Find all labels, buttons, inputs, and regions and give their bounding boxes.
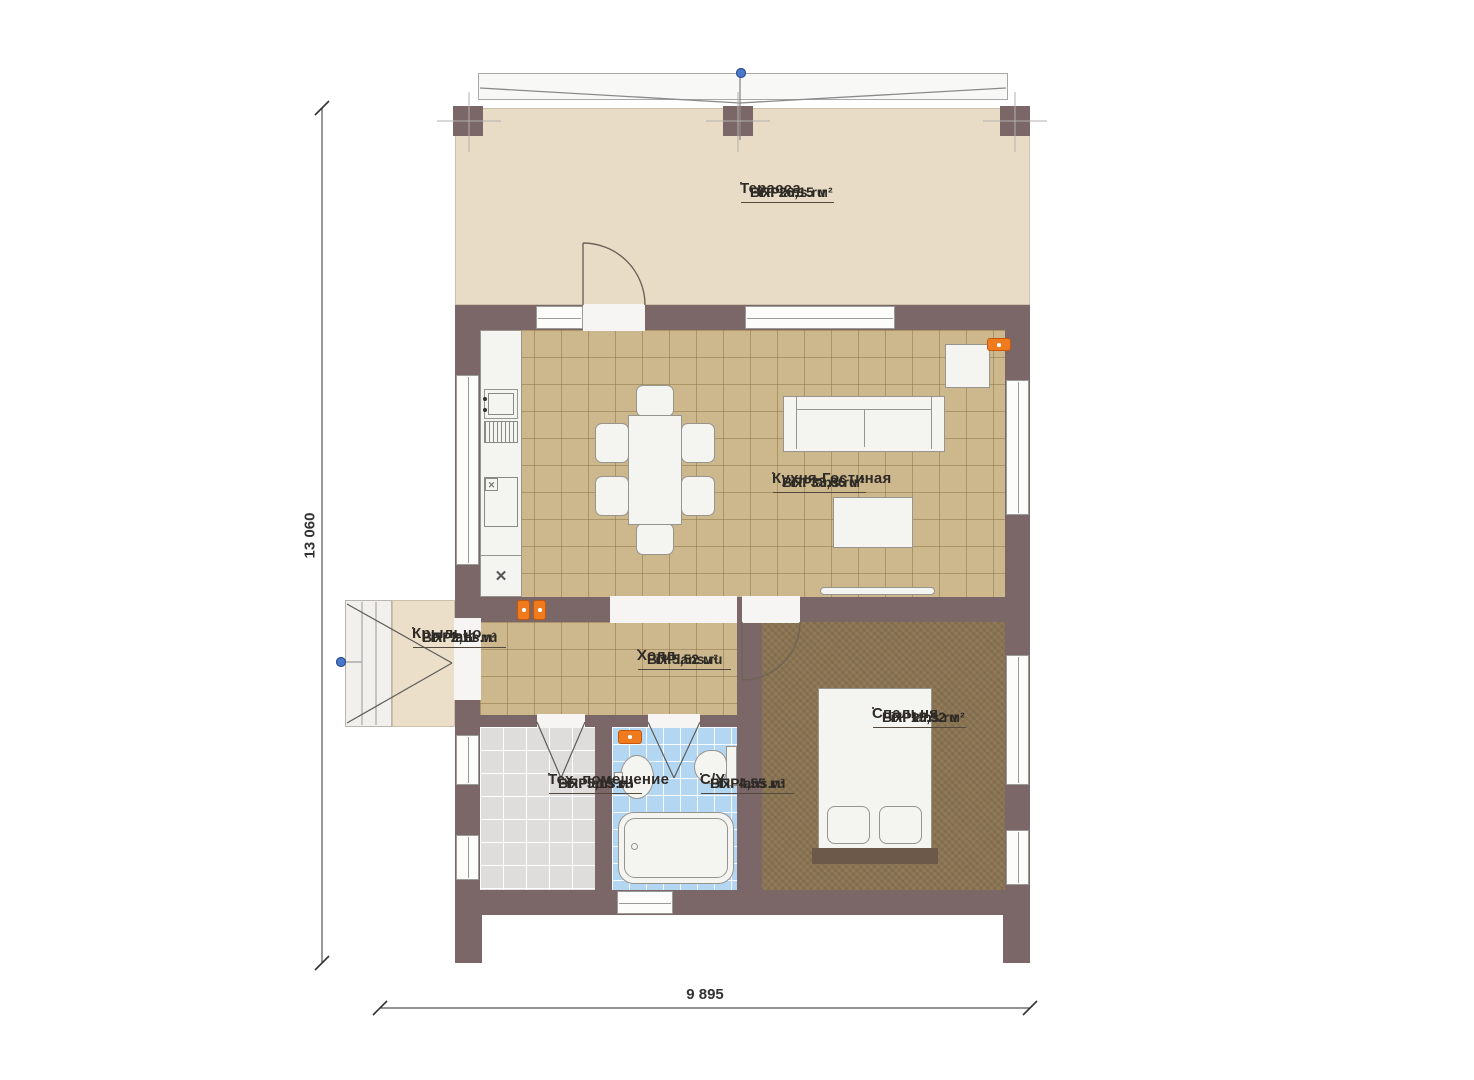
wall-bottom <box>455 890 1030 915</box>
area-label: ВП: 33,66 м² <box>773 473 874 492</box>
window-bottom <box>617 891 673 914</box>
area-label: ВП: 4,55 м² <box>701 774 794 793</box>
pilaster-bottom-right <box>1003 915 1030 963</box>
kitchen-drainboard <box>484 421 518 443</box>
porch-floor <box>392 600 455 727</box>
area-label: ВП:5,52 м² <box>638 650 727 669</box>
x-mark-icon: ✕ <box>495 569 508 584</box>
window-bedroom-right-1 <box>1006 655 1029 785</box>
partition-bedroom <box>737 622 762 890</box>
bathtub <box>618 812 734 884</box>
area-label: ВП: 2,11 м² <box>413 628 505 647</box>
tv-stand <box>820 587 935 595</box>
kitchen-utility-unit: ✕ <box>480 555 522 597</box>
dining-chair <box>636 523 674 555</box>
room-info-box: FixPlans.ru ВП: 2,11 м² <box>412 627 414 629</box>
radiator-marker <box>987 338 1011 351</box>
pillow <box>879 806 922 844</box>
room-info-box: FixPlans.ru ВП: 33,66 м² <box>772 472 774 474</box>
opening-hall-kitchen <box>610 596 737 623</box>
window-living-right <box>1006 380 1029 515</box>
sofa <box>783 396 945 452</box>
partition-tech-bath <box>595 727 612 890</box>
dining-chair <box>595 476 629 516</box>
dining-chair <box>595 423 629 463</box>
room-info-box: FixPlans.ru ВП: 15,52 м² <box>872 707 874 709</box>
roof-edge <box>478 73 1008 100</box>
tech-room-floor <box>480 727 595 890</box>
window-tech-left-1 <box>456 735 479 785</box>
terrace-post-right <box>1000 106 1030 136</box>
dining-table <box>628 415 682 525</box>
door-gap-terrace <box>583 304 645 331</box>
area-label: ВП: 26,15 м² <box>741 183 842 202</box>
window-living-top <box>745 306 895 329</box>
kitchen-living-floor <box>480 330 1005 597</box>
window-tech-left-2 <box>456 835 479 880</box>
terrace-post-left <box>453 106 483 136</box>
pilaster-bottom-left <box>455 915 482 963</box>
room-info-box: FixPlans.ru ВП: 5,15 м² <box>548 773 550 775</box>
radiator-marker <box>618 730 642 744</box>
kitchen-sink <box>484 389 518 419</box>
dining-chair <box>681 423 715 463</box>
room-info-box: FixPlans.ru ВП: 26,15 м² <box>740 182 742 184</box>
area-label: ВП: 15,52 м² <box>873 708 974 727</box>
kitchen-stove: ✕✕ ✕✕ <box>484 477 518 527</box>
side-table <box>945 344 990 388</box>
area-label: ВП: 5,15 м² <box>549 774 642 793</box>
dimension-horizontal: 9 895 <box>660 986 750 1003</box>
window-bedroom-right-2 <box>1006 830 1029 885</box>
radiator-marker <box>533 600 546 620</box>
window-kitchen-top <box>536 306 583 329</box>
coffee-table <box>833 497 913 548</box>
dining-chair <box>681 476 715 516</box>
door-gap-bedroom <box>742 596 800 623</box>
pillow <box>827 806 870 844</box>
door-gap-bath <box>648 714 700 728</box>
dining-chair <box>636 385 674 417</box>
stove-burner-icon: ✕ <box>485 478 498 491</box>
door-gap-tech <box>537 714 585 728</box>
terrace-floor <box>455 108 1030 305</box>
room-info-box: FixPlans.ru ВП:5,52 м² <box>637 649 639 651</box>
radiator-marker <box>517 600 530 620</box>
terrace-post-center <box>723 106 753 136</box>
floor-plan: ✕✕ ✕✕ ✕ <box>0 0 1474 1080</box>
bed-headboard <box>812 848 938 864</box>
porch-steps <box>345 600 392 727</box>
room-info-box: FixPlans.ru ВП: 4,55 м² <box>700 773 702 775</box>
window-kitchen-left <box>456 375 479 565</box>
dimension-vertical: 13 060 <box>302 491 319 581</box>
